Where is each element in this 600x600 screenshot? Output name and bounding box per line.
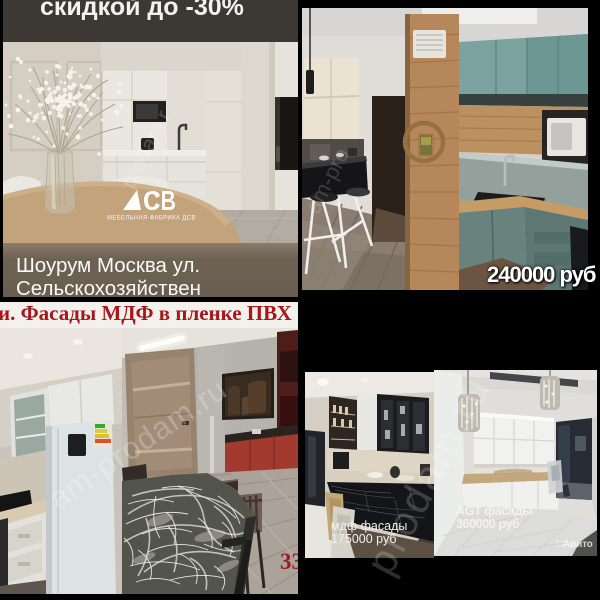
svg-text:am-prodam.ru: am-prodam.ru <box>42 371 233 516</box>
svg-text:am-pro: am-pro <box>300 144 354 217</box>
svg-text:prodam.r: prodam.r <box>117 107 176 192</box>
svg-text:prodam.ru: prodam.ru <box>356 367 500 582</box>
